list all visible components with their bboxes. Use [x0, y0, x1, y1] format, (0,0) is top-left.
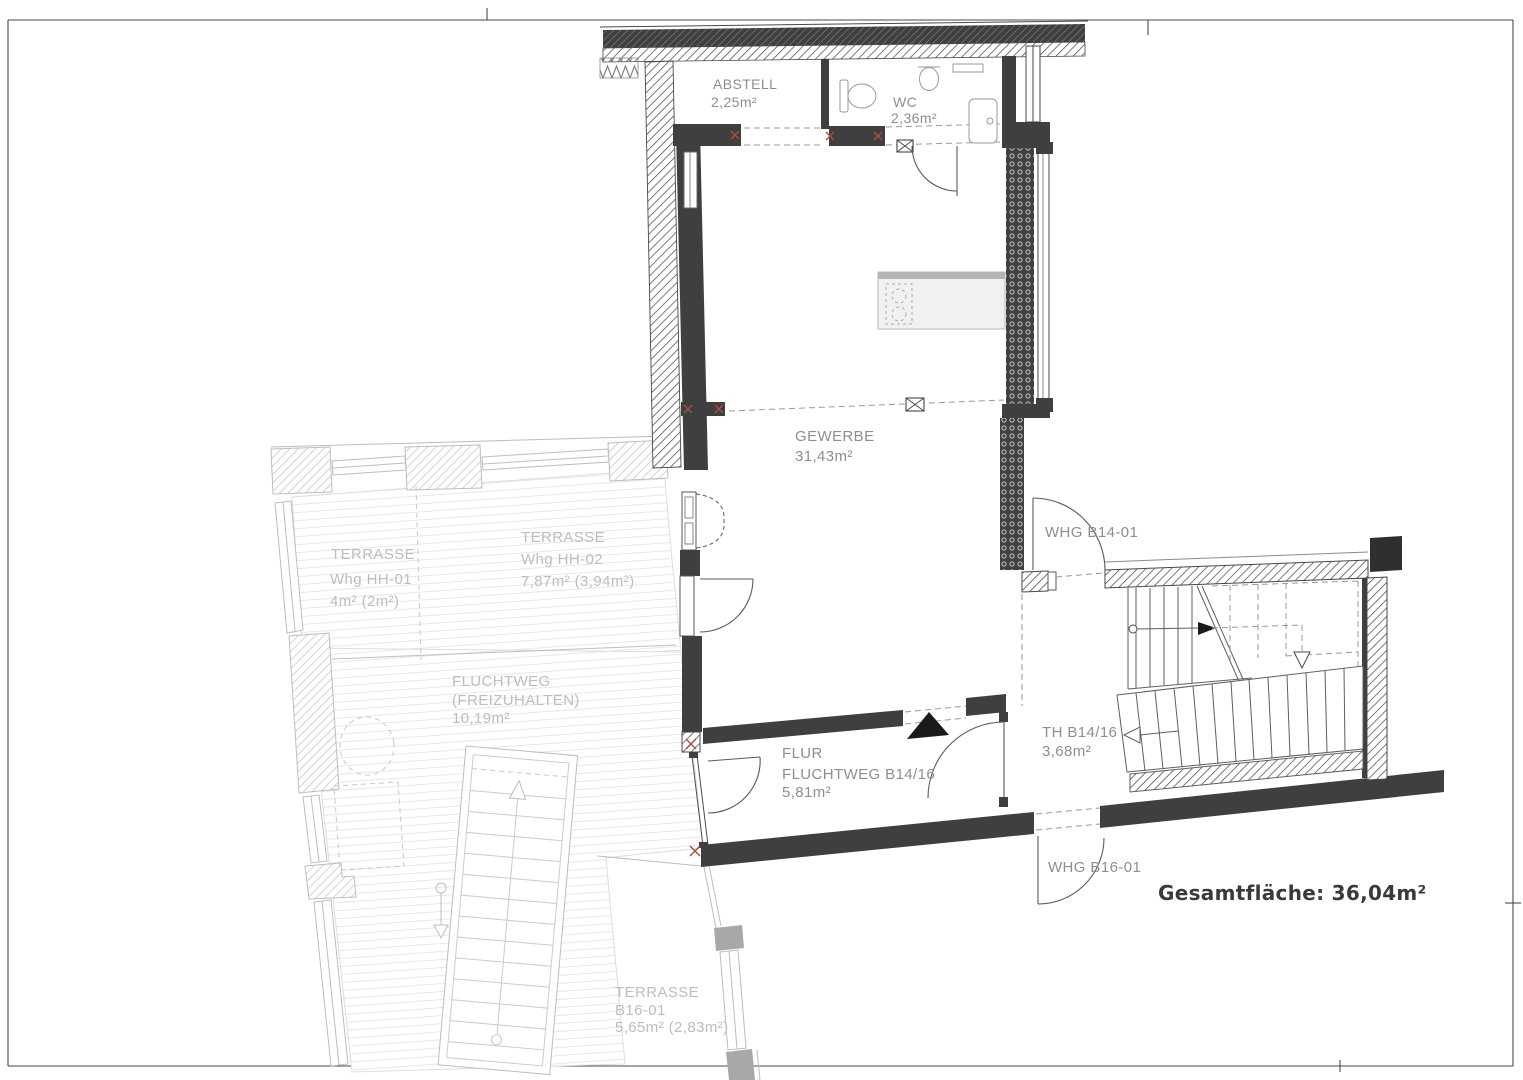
floor-plan-drawing: TERRASSE Whg HH-01 4m² (2m²) TERRASSE Wh…	[0, 0, 1523, 1080]
flur-route: FLUCHTWEG B14/16	[782, 766, 935, 783]
entrance-triangle	[907, 712, 949, 739]
gewerbe-label: GEWERBE	[795, 428, 874, 445]
terrasse-b16-unit: B16-01	[615, 1002, 666, 1019]
toilet-tank	[840, 80, 848, 112]
x-box-symbol	[906, 398, 924, 411]
terrasse-hh02-unit: Whg HH-02	[521, 551, 603, 568]
whg-b16-label: WHG B16-01	[1048, 859, 1141, 876]
page-frame	[8, 8, 1521, 1072]
fluchtweg-note: (FREIZUHALTEN)	[452, 692, 580, 709]
flur-door-arc	[708, 757, 760, 813]
stair-start-marker	[1129, 625, 1137, 633]
toilet-bowl	[848, 84, 876, 108]
pier	[271, 447, 332, 494]
whg-b14-label: WHG B14-01	[1045, 524, 1138, 541]
flur-door-leaf	[708, 757, 760, 761]
gewerbe-area: 31,43m²	[795, 448, 853, 465]
stair-upper-flight	[1128, 586, 1252, 689]
terrasse-b16-area: 5,65m² (2,83m²)	[615, 1019, 729, 1036]
terrasse-hh01-area: 4m² (2m²)	[330, 593, 399, 610]
kitchen-counter	[878, 272, 1005, 329]
x-box-symbol	[897, 140, 913, 152]
total-area-label: Gesamtfläche: 36,04m²	[1158, 881, 1427, 905]
french-door-swing	[696, 521, 724, 548]
drain	[987, 118, 993, 124]
terrasse-b16-label: TERRASSE	[615, 984, 699, 1001]
th-label: TH B14/16	[1042, 724, 1117, 741]
gewerbe-level-line	[679, 398, 1004, 416]
insulation-stub	[600, 58, 638, 78]
terrasse-hh01-unit: Whg HH-01	[330, 571, 412, 588]
vent-grille	[953, 64, 983, 72]
french-door-swing	[696, 494, 724, 521]
wc-door-arc	[912, 146, 957, 191]
terrasse-hh01-label: TERRASSE	[331, 546, 415, 563]
flur-area: 5,81m²	[782, 784, 831, 801]
th-area: 3,68m²	[1042, 743, 1091, 760]
sink-basin	[920, 68, 939, 91]
french-door-frame	[682, 492, 696, 550]
main-unit	[600, 21, 1444, 904]
terrasse-hh02-area: 7,87m² (3,94m²)	[521, 573, 635, 590]
abstell-label: ABSTELL	[713, 76, 777, 92]
fluchtweg-label: FLUCHTWEG	[452, 673, 551, 690]
wc-label: WC	[893, 94, 917, 110]
pier	[714, 925, 744, 951]
stair-down-arrow	[1294, 652, 1310, 668]
exterior-right-wall	[1000, 46, 1053, 570]
stair-break-line	[1197, 586, 1241, 686]
flur-label: FLUR	[782, 745, 823, 762]
pier	[726, 1049, 755, 1080]
door-frame	[680, 576, 694, 636]
wall-junction	[682, 732, 700, 752]
wc-area: 2,36m²	[891, 110, 937, 126]
abstell-area: 2,25m²	[711, 94, 757, 110]
fluchtweg-area: 10,19m²	[452, 710, 510, 727]
terrasse-hh02-label: TERRASSE	[521, 529, 605, 546]
gewerbe-left-wall	[676, 130, 753, 752]
gewerbe-door-arc	[700, 579, 753, 632]
pier	[405, 445, 482, 490]
room-labels: ABSTELL 2,25m² WC 2,36m² GEWERBE 31,43m²…	[711, 76, 1427, 905]
exterior-left-wall	[645, 61, 681, 468]
